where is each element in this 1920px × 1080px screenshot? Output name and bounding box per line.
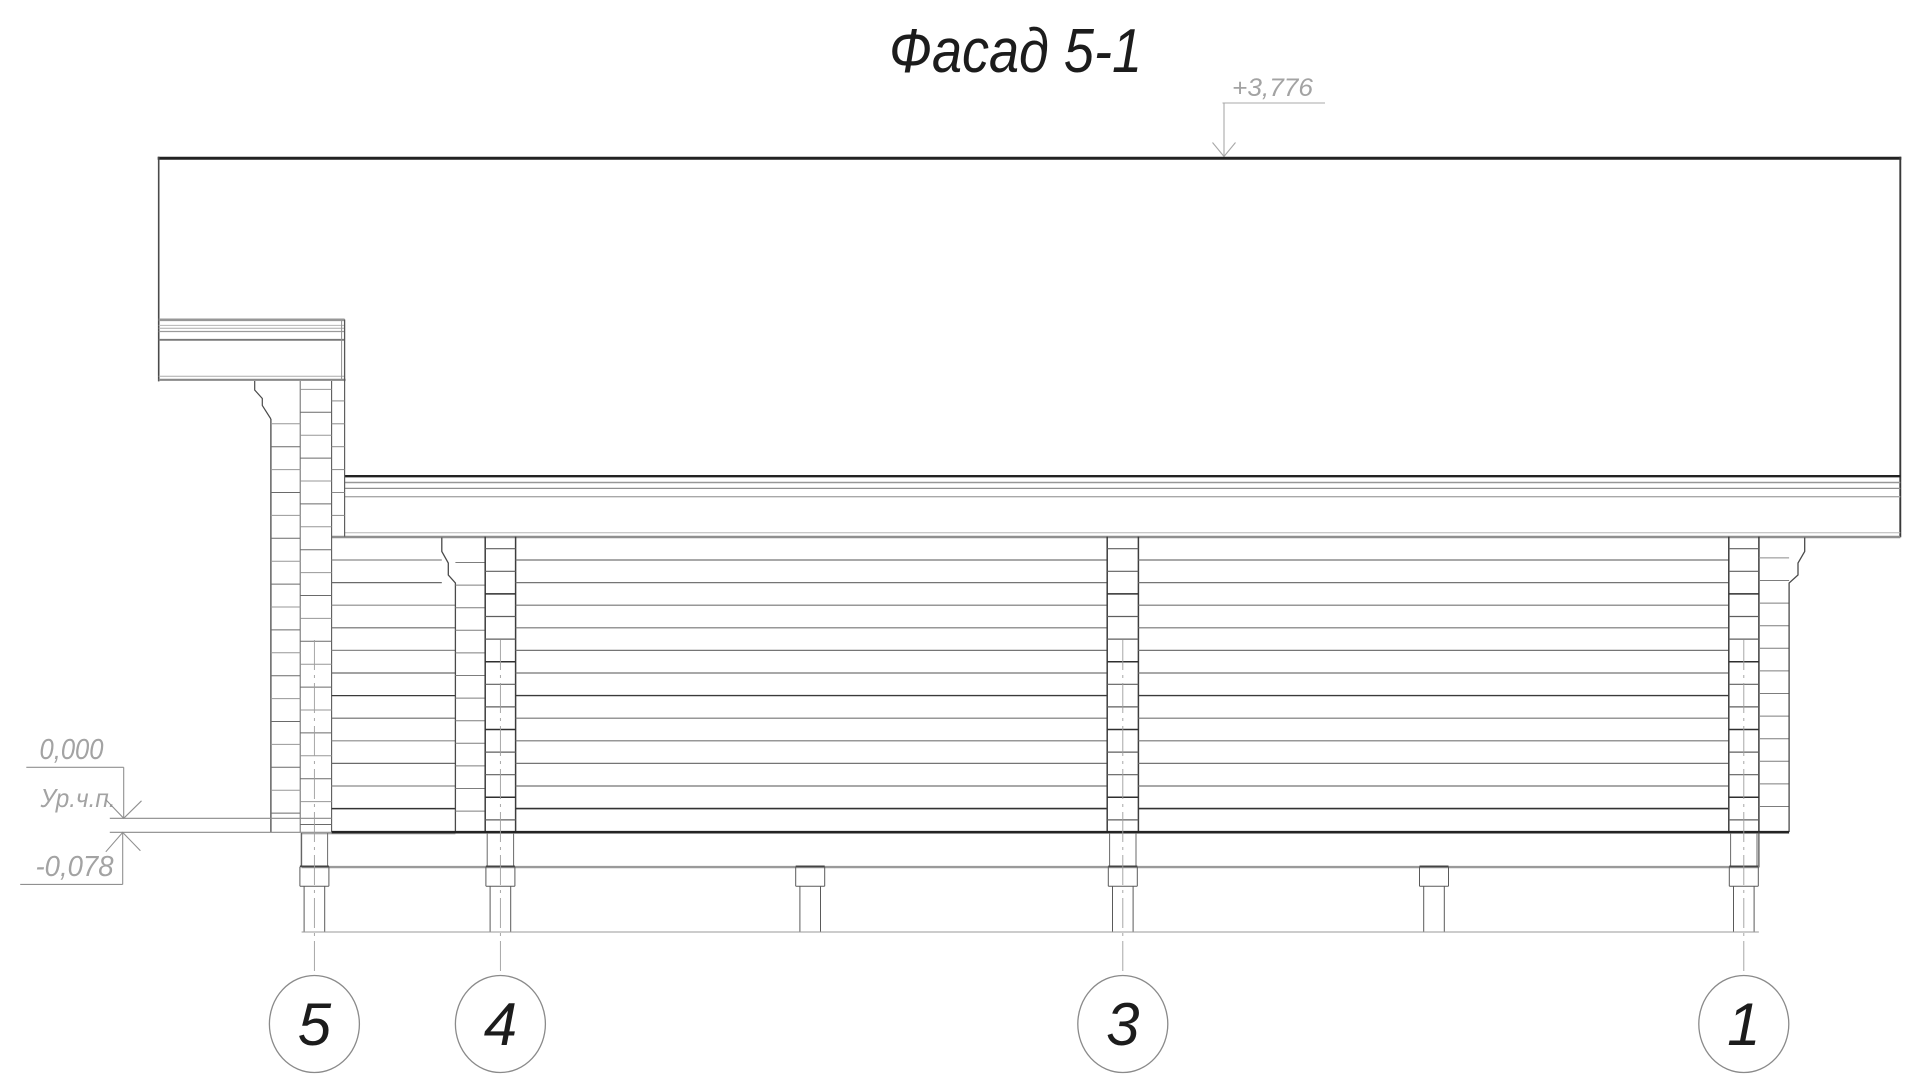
svg-text:-0,078: -0,078 [36, 851, 114, 883]
svg-text:4: 4 [484, 991, 517, 1058]
svg-text:5: 5 [298, 991, 332, 1058]
svg-text:Фасад 5-1: Фасад 5-1 [889, 17, 1142, 86]
svg-text:3: 3 [1106, 991, 1139, 1058]
svg-text:Ур.ч.п.: Ур.ч.п. [40, 783, 116, 813]
svg-text:0,000: 0,000 [40, 734, 104, 766]
svg-text:1: 1 [1727, 991, 1760, 1058]
svg-text:+3,776: +3,776 [1232, 74, 1313, 102]
